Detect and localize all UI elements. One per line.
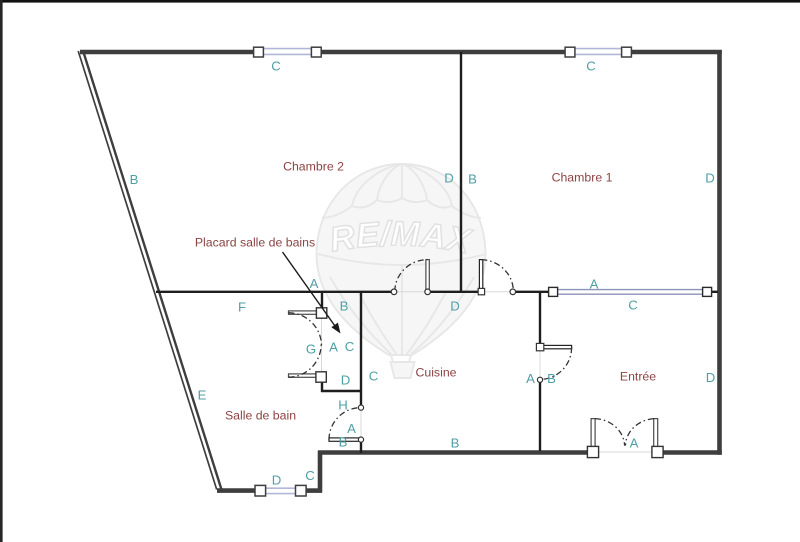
svg-text:A: A: [526, 371, 535, 386]
svg-text:G: G: [306, 342, 316, 357]
svg-text:C: C: [271, 59, 281, 74]
svg-text:B: B: [339, 435, 348, 450]
svg-text:B: B: [468, 172, 477, 187]
svg-text:A: A: [310, 276, 319, 291]
svg-text:C: C: [586, 59, 596, 74]
svg-text:D: D: [272, 473, 282, 488]
svg-text:Placard salle de bains: Placard salle de bains: [195, 236, 315, 250]
svg-text:B: B: [340, 299, 349, 314]
svg-text:D: D: [706, 370, 716, 385]
svg-text:F: F: [238, 300, 246, 315]
svg-text:A: A: [347, 421, 356, 436]
svg-text:B: B: [130, 172, 139, 187]
svg-text:C: C: [305, 468, 315, 483]
svg-text:B: B: [547, 371, 556, 386]
svg-text:H: H: [338, 398, 348, 413]
svg-text:D: D: [705, 171, 715, 186]
svg-text:D: D: [341, 373, 351, 388]
svg-text:Entrée: Entrée: [620, 370, 656, 384]
svg-text:A: A: [630, 436, 639, 451]
svg-text:A: A: [329, 340, 338, 355]
svg-text:B: B: [451, 436, 460, 451]
svg-text:Salle de bain: Salle de bain: [225, 409, 296, 423]
svg-text:Chambre 2: Chambre 2: [283, 160, 344, 174]
svg-text:C: C: [628, 298, 638, 313]
svg-text:Chambre 1: Chambre 1: [552, 171, 613, 185]
svg-text:E: E: [198, 388, 207, 403]
svg-text:D: D: [444, 171, 454, 186]
svg-text:C: C: [369, 369, 379, 384]
svg-text:Cuisine: Cuisine: [415, 366, 456, 380]
svg-text:D: D: [450, 299, 460, 314]
svg-text:C: C: [345, 339, 355, 354]
svg-text:A: A: [590, 277, 599, 292]
